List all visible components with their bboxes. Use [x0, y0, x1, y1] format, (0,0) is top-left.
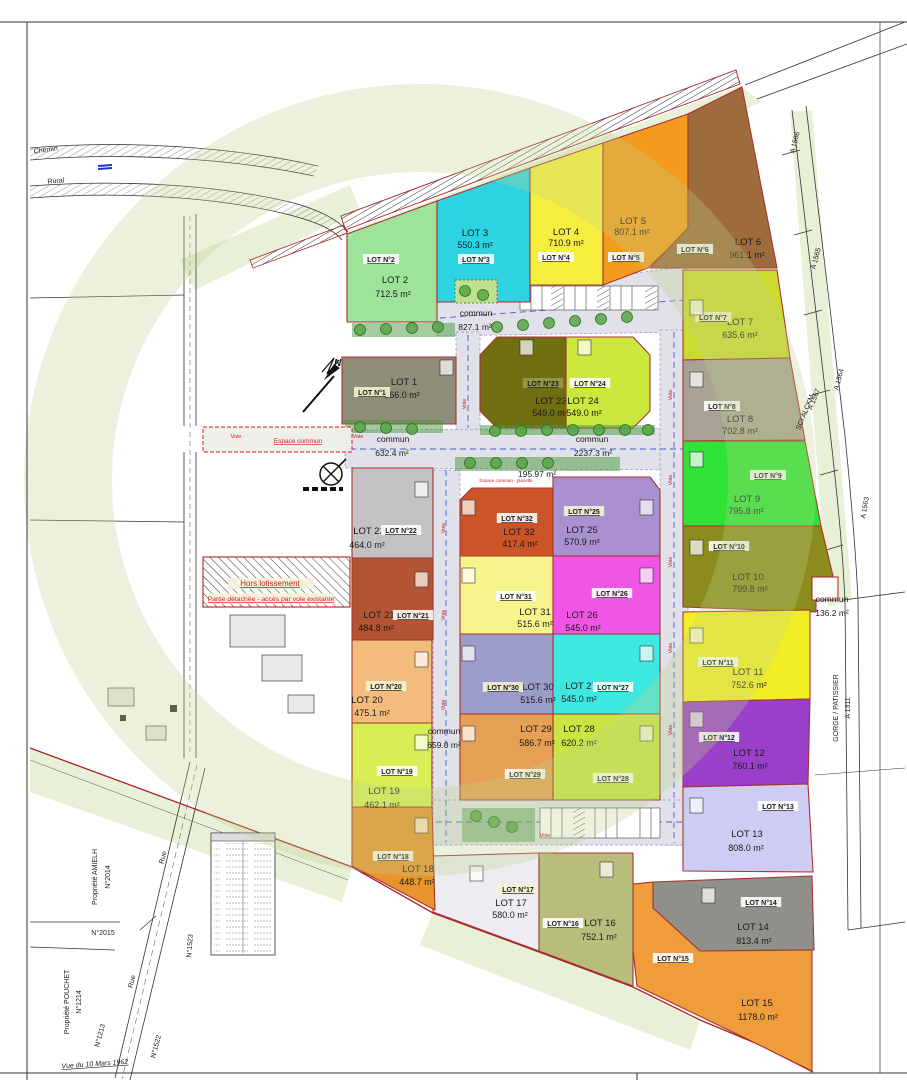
lot-name: LOT 24 — [567, 396, 599, 407]
tree-icon — [517, 458, 528, 469]
lot-number-label: LOT N°26 — [596, 590, 628, 598]
tree-icon — [643, 425, 654, 436]
commun-2-label: commun — [377, 434, 410, 444]
lot-number-label: LOT N°14 — [745, 899, 777, 907]
lot-area: 475.1 m² — [354, 708, 390, 718]
tree-icon — [407, 424, 418, 435]
building-footprint — [230, 615, 285, 647]
voie-label: Voie — [353, 434, 364, 440]
tree-icon — [620, 425, 631, 436]
lot-number-label: LOT N°1 — [358, 389, 386, 397]
garage-sketch — [415, 652, 428, 667]
voie-label: Voie — [441, 610, 447, 621]
garage-sketch — [415, 482, 428, 497]
lot-number-label: LOT N°19 — [381, 768, 413, 776]
lot-group-1: LOT 1666.0 m²LOT N°1 — [342, 357, 456, 424]
parcel-n2015: N°2015 — [91, 929, 115, 937]
lot-area: 760.1 m² — [732, 761, 768, 771]
north-letter: N — [334, 358, 342, 369]
tree-icon — [490, 426, 501, 437]
voie-label: Voie — [540, 833, 551, 839]
lot-group-25: LOT 25570.9 m²LOT N°25 — [553, 477, 660, 556]
lot-polygon-13[interactable] — [683, 784, 813, 872]
lot-area: 752.1 m² — [581, 932, 617, 942]
garage-sketch — [520, 340, 533, 355]
garage-sketch — [415, 735, 428, 750]
subdivision-plan-page: LOT 1666.0 m²LOT N°1LOT 2712.5 m²LOT N°2… — [0, 0, 907, 1080]
tree-icon — [407, 323, 418, 334]
voie-label: Voie — [668, 475, 674, 486]
lot-area: 515.6 m² — [520, 695, 556, 705]
lot-name: LOT 3 — [462, 228, 488, 239]
garage-sketch — [462, 500, 475, 515]
commun-5-label: commun — [428, 726, 461, 736]
voie-label: Voie — [462, 399, 468, 410]
lot-number-label: LOT N°31 — [500, 593, 532, 601]
lot-group-13: LOT 13808.0 m²LOT N°13 — [683, 784, 813, 872]
lot-name: LOT 4 — [553, 227, 579, 238]
lot-name: LOT 1 — [391, 377, 417, 388]
tree-icon — [465, 458, 476, 469]
voie-label: Voie — [441, 523, 447, 534]
lot-name: LOT 29 — [520, 724, 552, 735]
commun-3-area: 2237.3 m² — [574, 448, 612, 458]
espace-commun-label: Espace commun — [274, 438, 323, 445]
parcel-a1311: A 1311 — [845, 697, 852, 718]
rural-label: Rural — [47, 177, 65, 185]
tree-icon — [355, 325, 366, 336]
lot-number-label: LOT N°15 — [657, 955, 689, 963]
garage-sketch — [690, 798, 703, 813]
lot-name: LOT 13 — [731, 829, 763, 840]
tree-icon — [542, 425, 553, 436]
lot-number-label: LOT N°3 — [462, 256, 490, 264]
lot-area: 710.9 m² — [548, 238, 584, 248]
lot-area: 417.4 m² — [502, 539, 538, 549]
lot-group-21: LOT 21484.8 m²LOT N°21 — [352, 558, 433, 640]
lot-number-label: LOT N°25 — [568, 508, 600, 516]
garage-sketch — [640, 500, 653, 515]
tree-icon — [596, 314, 607, 325]
lot-name: LOT 23 — [535, 396, 567, 407]
lot-number-label: LOT N°30 — [487, 684, 519, 692]
lot-area: 448.7 m² — [399, 877, 435, 887]
lot-area: 586.7 m² — [519, 738, 555, 748]
tree-icon — [622, 312, 633, 323]
tree-icon — [381, 423, 392, 434]
lot-number-label: LOT N°32 — [501, 515, 533, 523]
lot-number-label: LOT N°24 — [574, 380, 606, 388]
parcel-gorge-patissier: GORGE / PATISSIER — [833, 674, 840, 741]
lot-number-label: LOT N°17 — [502, 886, 534, 894]
lot-name: LOT 28 — [563, 724, 595, 735]
lot-number-label: LOT N°13 — [762, 803, 794, 811]
lot-name: LOT 15 — [741, 998, 773, 1009]
voie-label: Voie — [668, 643, 674, 654]
commun-2-area: 632.4 m² — [375, 448, 409, 458]
partie-detachee-label: Partie détachée - accès par voie existan… — [208, 596, 335, 603]
lot-area: 712.5 m² — [375, 289, 411, 299]
lot-name: LOT 2 — [382, 275, 408, 286]
garage-sketch — [690, 452, 703, 467]
lot-name: LOT 25 — [566, 525, 598, 536]
lot-name: LOT 30 — [522, 682, 554, 693]
lot-name: LOT 27 — [565, 681, 597, 692]
lot-area: 808.0 m² — [728, 843, 764, 853]
tree-icon — [491, 458, 502, 469]
voie-label: Voie — [668, 390, 674, 401]
tree-icon — [570, 316, 581, 327]
lot-number-label: LOT N°21 — [397, 612, 429, 620]
tree-icon — [492, 322, 503, 333]
lot-area: 515.6 m² — [517, 619, 553, 629]
tree-icon — [478, 290, 489, 301]
commun-1-label: commun — [460, 308, 493, 318]
building-footprint — [288, 695, 314, 713]
voie-label: Voie — [231, 434, 242, 440]
lot-name: LOT 16 — [584, 918, 616, 929]
lot-name: LOT 21 — [363, 610, 395, 621]
tree-icon — [460, 286, 471, 297]
garage-sketch — [640, 646, 653, 661]
lot-name: LOT 22 — [353, 526, 385, 537]
lot-name: LOT 20 — [351, 695, 383, 706]
tree-icon — [543, 458, 554, 469]
tree-icon — [516, 426, 527, 437]
tree-icon — [433, 322, 444, 333]
garage-sketch — [702, 888, 715, 903]
lot-name: LOT 17 — [495, 898, 527, 909]
commun-6-label: commun — [816, 594, 849, 604]
lot-area: 1178.0 m² — [738, 1012, 778, 1022]
tree-icon — [518, 320, 529, 331]
lot-area: 813.4 m² — [736, 936, 772, 946]
parcel-n1214: N°1214 — [75, 990, 83, 1014]
garage-sketch — [578, 340, 591, 355]
commun-3-label: commun — [576, 434, 609, 444]
tree-icon — [544, 318, 555, 329]
tree-icon — [355, 422, 366, 433]
commun-6-area: 136.2 m² — [815, 608, 849, 618]
lot-number-label: LOT N°23 — [527, 380, 559, 388]
lot-number-label: LOT N°20 — [370, 683, 402, 691]
lot-number-label: LOT N°27 — [597, 684, 629, 692]
lot-number-label: LOT N°16 — [547, 920, 579, 928]
lot-name: LOT 32 — [503, 527, 535, 538]
garage-sketch — [440, 360, 453, 375]
hors-lotissement-label: Hors lotissement — [240, 579, 300, 588]
garage-sketch — [600, 862, 613, 877]
garage-sketch — [415, 572, 428, 587]
garage-sketch — [640, 568, 653, 583]
lot-area: 570.9 m² — [564, 537, 600, 547]
site-plan: LOT 1666.0 m²LOT N°1LOT 2712.5 m²LOT N°2… — [0, 0, 907, 1080]
garage-sketch — [462, 726, 475, 741]
commun-1-area: 827.1 m² — [458, 322, 492, 332]
lot-area: 484.8 m² — [358, 623, 394, 633]
lot-area: 580.0 m² — [492, 910, 528, 920]
coordinates-table — [211, 833, 275, 955]
lot-name: LOT 12 — [733, 748, 765, 759]
lot-area: 549.0 m² — [532, 408, 568, 418]
voie-label: Voie — [668, 557, 674, 568]
lot-area: 545.0 m² — [561, 694, 597, 704]
lot-group-32: LOT 32417.4 m²LOT N°32 — [460, 488, 553, 556]
lot-name: LOT 14 — [737, 922, 769, 933]
tree-icon — [381, 324, 392, 335]
voie-label: Voie — [668, 725, 674, 736]
garage-sketch — [462, 646, 475, 661]
garage-sketch — [690, 540, 703, 555]
lot-number-label: LOT N°4 — [542, 254, 570, 262]
commun-5-area: 659.0 m² — [427, 740, 461, 750]
lot-number-label: LOT N°2 — [367, 256, 395, 264]
lot-group-22: LOT 22464.0 m²LOT N°22 — [349, 468, 433, 558]
lot-area: 550.3 m² — [457, 240, 493, 250]
espace-placette-label: Espace commun - placette — [479, 478, 533, 483]
lot-name: LOT 26 — [566, 610, 598, 621]
parcel-n1523: N°1523 — [185, 934, 195, 958]
lot-name: LOT 31 — [519, 607, 551, 618]
lot-area: 464.0 m² — [349, 540, 385, 550]
parcel-n2014: N°2014 — [104, 865, 112, 889]
lot-area: 549.0 m² — [566, 408, 602, 418]
garage-sketch — [462, 568, 475, 583]
parcel-pouchet: Propriété POUCHET — [64, 969, 71, 1034]
lot-area: 545.0 m² — [565, 623, 601, 633]
voie-label: Voie — [441, 700, 447, 711]
parcel-amielh: Propriété AMIELH — [92, 849, 99, 905]
lot-number-label: LOT N°22 — [385, 527, 417, 535]
garage-sketch — [690, 372, 703, 387]
building-footprint — [262, 655, 302, 681]
